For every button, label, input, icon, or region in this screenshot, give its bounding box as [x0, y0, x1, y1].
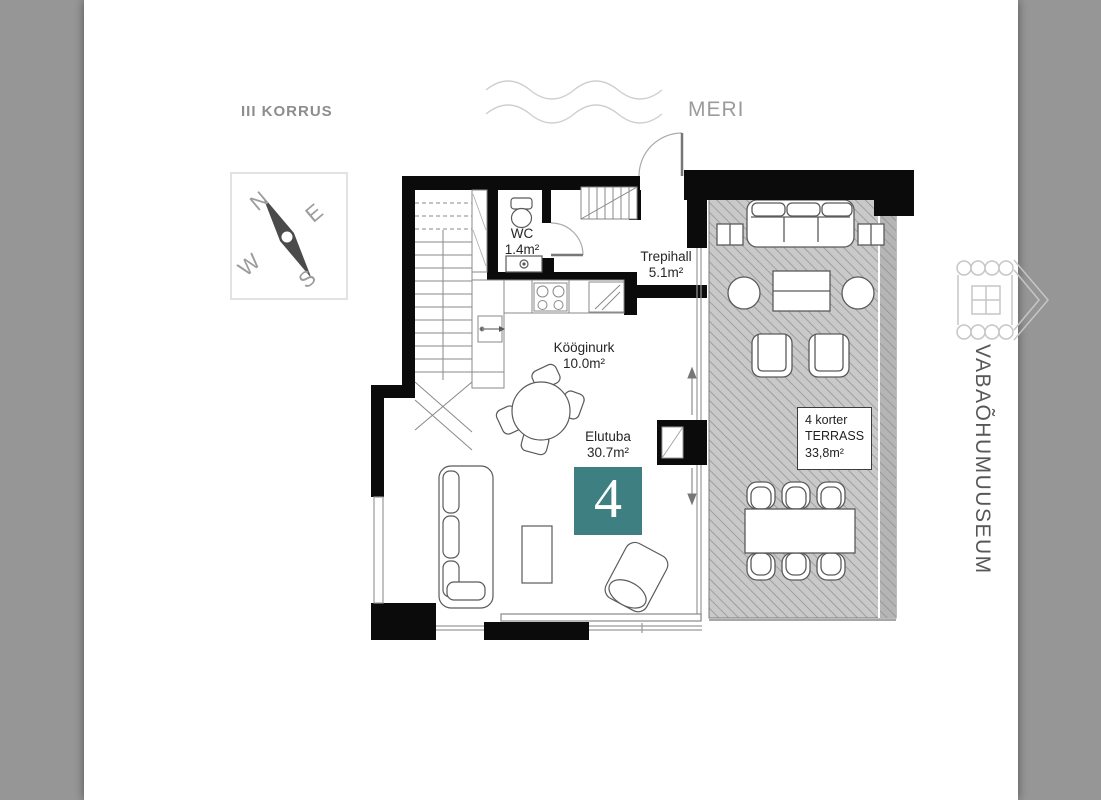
- museum-label: VABAÕHUMUUSEUM: [970, 344, 994, 575]
- wc-label: WC 1.4m²: [491, 226, 553, 258]
- terrace-armchair: [809, 334, 849, 377]
- floor-title: III KORRUS: [241, 103, 333, 120]
- trepihall-name: Trepihall: [624, 249, 708, 265]
- terrace-dining-table: [745, 509, 855, 553]
- trepihall-area: 5.1m²: [624, 265, 708, 281]
- terrace-area: 33,8m²: [805, 445, 871, 461]
- coffee-table: [522, 526, 552, 583]
- kooginurk-name: Kööginurk: [536, 340, 632, 356]
- wc-area: 1.4m²: [491, 242, 553, 258]
- terrace-pouf: [842, 277, 874, 309]
- tv-bench: [501, 614, 701, 621]
- log-cabin-icon: [950, 254, 1052, 346]
- terrace-name: TERRASS: [805, 428, 871, 444]
- terrace-unit: 4 korter: [805, 412, 871, 428]
- staircase-main: [415, 190, 472, 450]
- unit-number-marker: 4: [574, 467, 642, 535]
- fridge: [589, 282, 624, 312]
- wc-door: [551, 223, 583, 255]
- sofa: [439, 466, 493, 608]
- wc-name: WC: [491, 226, 553, 242]
- toilet-bowl: [512, 209, 532, 228]
- floor-plan-drawing: [369, 130, 914, 645]
- kooginurk-area: 10.0m²: [536, 356, 632, 372]
- terrace-side-table: [717, 224, 743, 245]
- toilet-tank: [511, 198, 532, 209]
- drawing-page: III KORRUS MERI N E W S: [84, 0, 1018, 800]
- terrace-armchair: [752, 334, 792, 377]
- floor-plan-sheet: III KORRUS MERI N E W S: [0, 0, 1101, 800]
- elutuba-area: 30.7m²: [562, 445, 654, 461]
- compass-rose: N E W S: [230, 172, 348, 300]
- elutuba-label: Elutuba 30.7m²: [562, 429, 654, 461]
- sink: [478, 316, 505, 342]
- staircase-trepihall: [581, 187, 637, 219]
- washing-machine: [506, 256, 542, 272]
- trepihall-label: Trepihall 5.1m²: [624, 249, 708, 281]
- living-room-furniture: [439, 466, 701, 621]
- terrace-sofa: [747, 200, 854, 247]
- elutuba-name: Elutuba: [562, 429, 654, 445]
- entry-door: [639, 133, 682, 176]
- terrace-pouf: [728, 277, 760, 309]
- fireplace-inset: [662, 427, 683, 458]
- kooginurk-label: Kööginurk 10.0m²: [536, 340, 632, 372]
- lounge-chair-tilted: [602, 539, 672, 615]
- stove: [534, 283, 567, 311]
- terrace-side-table: [858, 224, 884, 245]
- window-west: [374, 497, 383, 603]
- sea-label: MERI: [688, 98, 745, 122]
- terrace-coffee-table: [773, 271, 830, 311]
- shaft: [472, 190, 487, 272]
- terrace-label-box: 4 korter TERRASS 33,8m²: [797, 407, 872, 470]
- sea-waves-icon: [484, 70, 664, 134]
